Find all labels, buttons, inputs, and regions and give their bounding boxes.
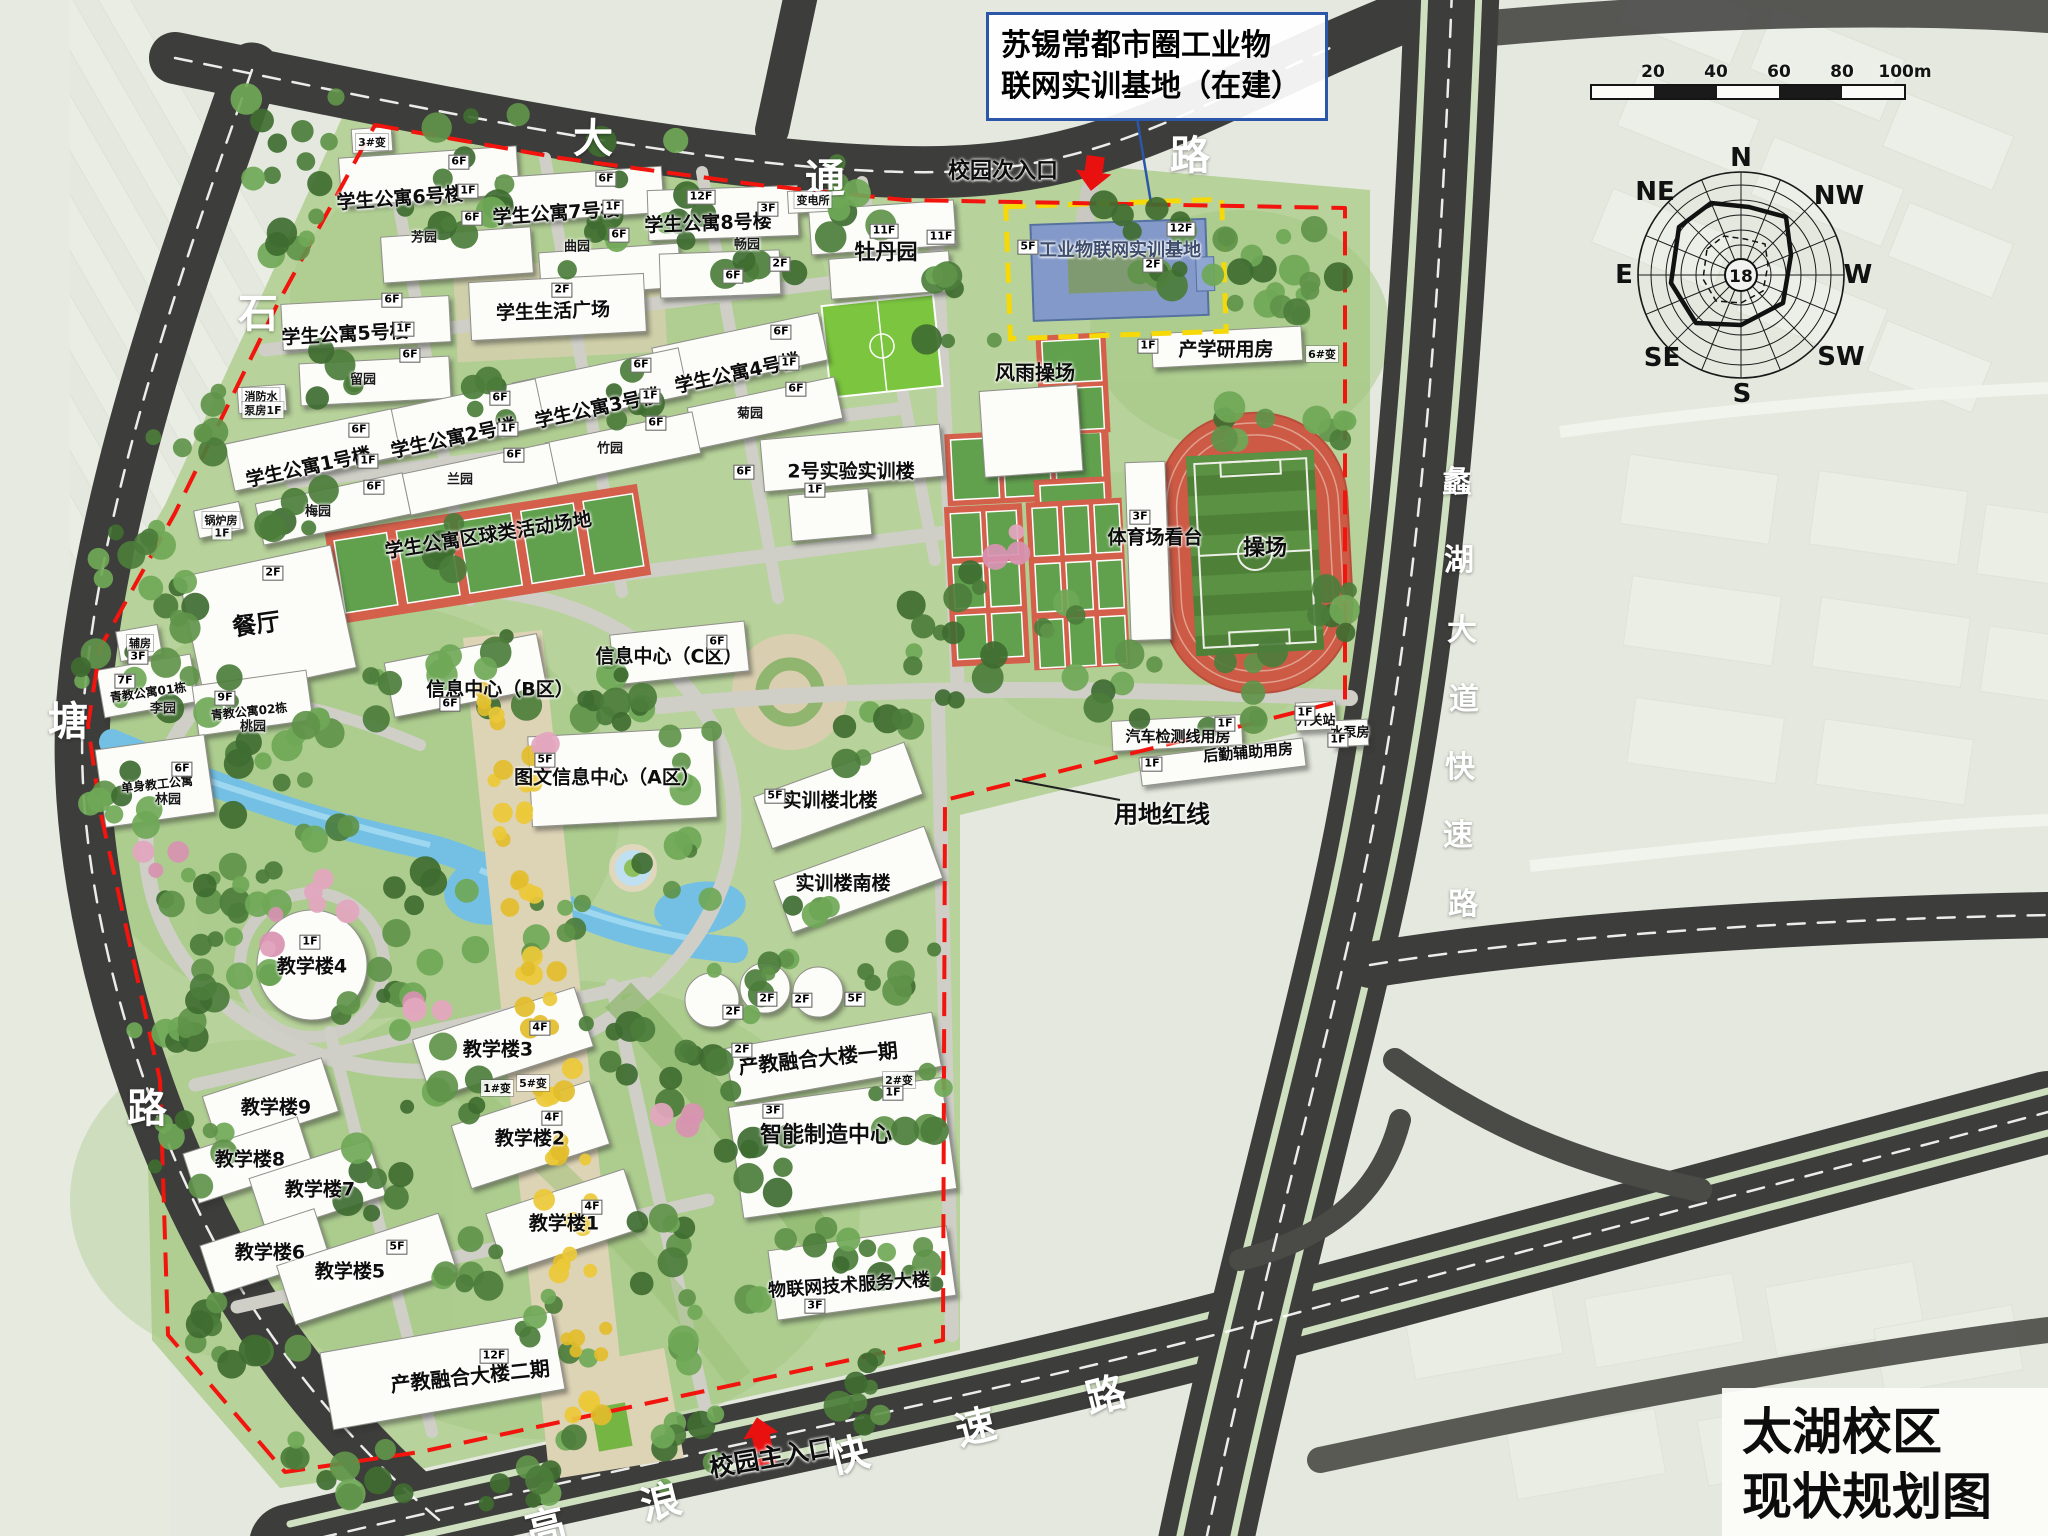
compass-e: E bbox=[1615, 260, 1633, 290]
compass-n: N bbox=[1730, 143, 1752, 173]
map-title-line2: 现状规划图 bbox=[1742, 1465, 2042, 1530]
scale-bar: 20406080100m bbox=[1590, 62, 1906, 100]
scale-tick-label: 20 bbox=[1641, 62, 1665, 82]
scale-segment bbox=[1717, 86, 1779, 98]
wind-rose-compass: 18 N NE E SE S SW W NW bbox=[1606, 140, 1876, 410]
scale-tick-label: 60 bbox=[1767, 62, 1791, 82]
construction-title-box: 苏锡常都市圈工业物 联网实训基地（在建） bbox=[986, 12, 1328, 121]
compass-w: W bbox=[1844, 260, 1873, 290]
construction-title-line2: 联网实训基地（在建） bbox=[1001, 66, 1313, 107]
compass-se: SE bbox=[1644, 343, 1681, 373]
scale-tick-label: 40 bbox=[1704, 62, 1728, 82]
compass-center-value: 18 bbox=[1729, 267, 1753, 287]
scale-segment bbox=[1779, 86, 1841, 98]
compass-sw: SW bbox=[1817, 342, 1864, 372]
compass-nw: NW bbox=[1814, 181, 1864, 211]
construction-title-line1: 苏锡常都市圈工业物 bbox=[1001, 25, 1313, 66]
map-title-panel: 太湖校区 现状规划图 bbox=[1722, 1388, 2048, 1536]
scale-tick-label: 80 bbox=[1830, 62, 1854, 82]
scale-segment bbox=[1592, 86, 1654, 98]
scale-bar-ticks: 20406080100m bbox=[1590, 62, 1906, 84]
compass-ne: NE bbox=[1635, 177, 1675, 207]
scale-segment bbox=[1842, 86, 1904, 98]
map-title-line1: 太湖校区 bbox=[1742, 1400, 2042, 1465]
scale-bar-segments bbox=[1590, 84, 1906, 100]
scale-segment bbox=[1654, 86, 1716, 98]
compass-s: S bbox=[1733, 379, 1752, 409]
campus-master-plan: 学生公寓6号楼学生公寓7号楼学生公寓8号楼学生生活广场学生公寓5号楼学生公寓4号… bbox=[0, 0, 2048, 1536]
scale-tick-label: 100m bbox=[1878, 62, 1931, 82]
